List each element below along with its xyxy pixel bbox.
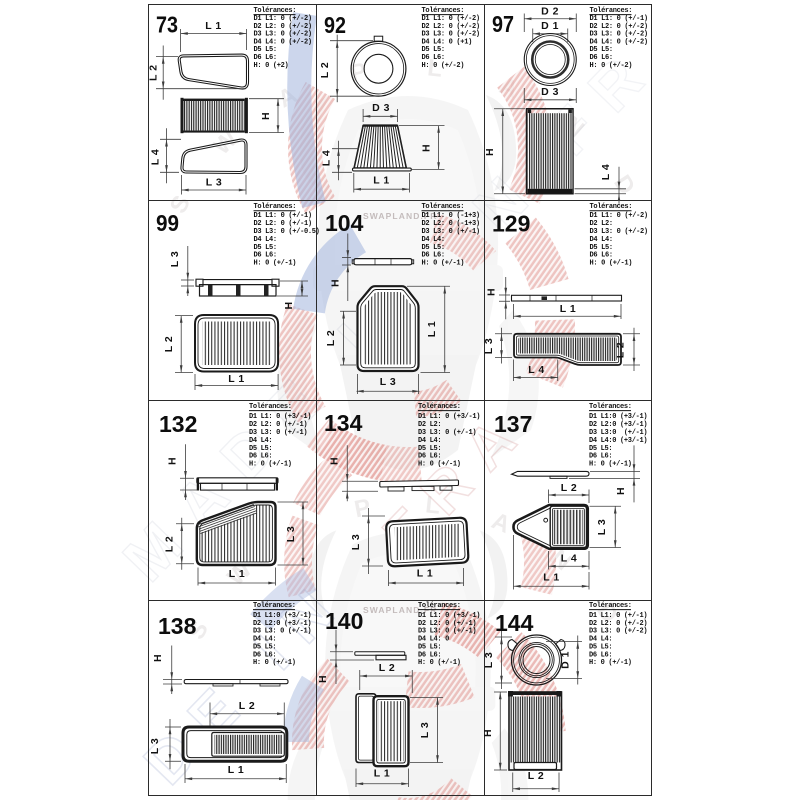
- svg-text:L 4: L 4: [150, 149, 162, 165]
- svg-text:L 2: L 2: [319, 62, 331, 78]
- svg-text:D4 L4:: D4 L4:: [249, 437, 272, 445]
- svg-text:134: 134: [324, 410, 363, 436]
- svg-text:H: H: [482, 729, 494, 737]
- svg-text:L 3: L 3: [483, 338, 495, 354]
- svg-text:H: H: [329, 457, 341, 465]
- svg-text:D2 L2: 0 (+/-1): D2 L2: 0 (+/-1): [418, 620, 476, 628]
- svg-text:D5 L5:: D5 L5:: [422, 46, 445, 54]
- svg-text:D2 L2: 0 (+/-1): D2 L2: 0 (+/-1): [254, 220, 312, 228]
- svg-text:L 2: L 2: [379, 662, 395, 674]
- svg-text:104: 104: [325, 210, 364, 236]
- svg-text:99: 99: [156, 210, 179, 236]
- svg-text:D5 L5:: D5 L5:: [249, 445, 272, 453]
- svg-text:D2 L2: 0 (+/-2): D2 L2: 0 (+/-2): [422, 23, 480, 31]
- svg-text:D3 L3: 0 (+/-2): D3 L3: 0 (+/-2): [589, 628, 647, 636]
- svg-text:D5 L5:: D5 L5:: [253, 643, 276, 651]
- svg-text:L 1: L 1: [426, 321, 438, 337]
- svg-text:D3 L3: 0 (+/-1): D3 L3: 0 (+/-1): [418, 628, 476, 636]
- svg-text:L 2: L 2: [615, 342, 627, 358]
- svg-text:H: 0 (+/-1): H: 0 (+/-1): [590, 260, 633, 268]
- svg-text:L 4: L 4: [321, 150, 333, 166]
- svg-text:D1 L1: 0 (-1+3): D1 L1: 0 (-1+3): [422, 212, 480, 220]
- svg-text:D5 L5:: D5 L5:: [422, 244, 445, 252]
- svg-text:Tolérances:: Tolérances:: [422, 7, 465, 15]
- svg-text:D5 L5:: D5 L5:: [590, 244, 613, 252]
- svg-text:D6 L6:: D6 L6:: [422, 54, 445, 62]
- svg-text:D4 L4:: D4 L4:: [418, 437, 441, 445]
- svg-text:D2 L2:: D2 L2:: [418, 421, 441, 429]
- svg-text:D4 L4:: D4 L4:: [590, 236, 613, 244]
- svg-text:D5 L5:: D5 L5:: [590, 46, 613, 54]
- svg-text:Tolérances:: Tolérances:: [589, 602, 632, 610]
- svg-text:129: 129: [492, 211, 530, 237]
- svg-text:D5 L5:: D5 L5:: [589, 445, 612, 453]
- svg-text:D 3: D 3: [372, 102, 390, 114]
- svg-text:D4 L4:0 (+3/-1): D4 L4:0 (+3/-1): [589, 437, 647, 445]
- svg-text:D3 L3: 0 (+/-1): D3 L3: 0 (+/-1): [422, 228, 480, 236]
- svg-text:H: 0 (+/-1): H: 0 (+/-1): [418, 461, 461, 469]
- svg-text:D4 L4: 0 (+1): D4 L4: 0 (+1): [422, 38, 473, 46]
- svg-text:H: 0 (+/-1): H: 0 (+/-1): [422, 260, 465, 268]
- svg-text:L 3: L 3: [350, 534, 362, 550]
- svg-text:H: 0 (+/-1): H: 0 (+/-1): [589, 659, 632, 667]
- svg-text:H: 0 (+2): H: 0 (+2): [254, 62, 289, 70]
- svg-text:D3 L3: 0 (+/-1): D3 L3: 0 (+/-1): [418, 429, 476, 437]
- svg-text:D6 L6:: D6 L6:: [254, 54, 277, 62]
- svg-text:Tolérances:: Tolérances:: [254, 203, 297, 211]
- svg-text:D2 L2:0 (+3/-1): D2 L2:0 (+3/-1): [589, 421, 647, 429]
- svg-text:L 3: L 3: [149, 738, 161, 754]
- svg-text:D6 L6:: D6 L6:: [589, 453, 612, 461]
- svg-text:L 3: L 3: [169, 251, 181, 267]
- svg-text:Tolérances:: Tolérances:: [249, 403, 292, 411]
- svg-text:L 1: L 1: [228, 373, 244, 385]
- svg-text:D1 L1: 0 (+3/-1): D1 L1: 0 (+3/-1): [418, 413, 480, 421]
- svg-text:140: 140: [325, 608, 363, 634]
- svg-text:D2 L2:0 (+3/-1): D2 L2:0 (+3/-1): [253, 620, 311, 628]
- svg-text:D1 L1: 0 (+/-2): D1 L1: 0 (+/-2): [422, 15, 480, 23]
- svg-text:D6 L6:: D6 L6:: [253, 651, 276, 659]
- svg-text:Tolérances:: Tolérances:: [418, 602, 461, 610]
- svg-text:D6 L6:: D6 L6:: [589, 651, 612, 659]
- svg-text:L 1: L 1: [205, 20, 221, 32]
- svg-text:97: 97: [492, 11, 514, 37]
- svg-text:D5 L5:: D5 L5:: [418, 445, 441, 453]
- svg-text:L 2: L 2: [148, 64, 160, 80]
- svg-text:D 2: D 2: [541, 6, 559, 18]
- svg-text:Tolérances:: Tolérances:: [253, 602, 296, 610]
- svg-text:D2 L2: 0 (+/-2): D2 L2: 0 (+/-2): [254, 23, 312, 31]
- svg-text:D4 L4: 0 (+/-2): D4 L4: 0 (+/-2): [254, 38, 312, 46]
- svg-text:L 1: L 1: [560, 303, 576, 315]
- svg-text:D4 L4:: D4 L4:: [422, 236, 445, 244]
- svg-text:L 4: L 4: [528, 364, 544, 376]
- svg-text:D 3: D 3: [541, 86, 559, 98]
- svg-text:D1 L1: 0 (+/-1): D1 L1: 0 (+/-1): [254, 212, 312, 220]
- svg-text:138: 138: [158, 613, 197, 639]
- svg-text:L 1: L 1: [373, 175, 389, 187]
- svg-text:D1 L1:0 (+3/-1): D1 L1:0 (+3/-1): [589, 413, 647, 421]
- svg-text:D1 L1: 0 (+/-1): D1 L1: 0 (+/-1): [589, 612, 647, 620]
- svg-text:L 1: L 1: [417, 568, 433, 580]
- svg-text:D3 L3: 0 (+/-2): D3 L3: 0 (+/-2): [590, 228, 648, 236]
- svg-text:D1 L1: 0 (+/-1): D1 L1: 0 (+/-1): [590, 15, 648, 23]
- svg-text:H: H: [615, 487, 627, 495]
- svg-text:H: 0 (+/-1): H: 0 (+/-1): [249, 461, 292, 469]
- svg-text:L 3: L 3: [483, 652, 495, 668]
- svg-text:D5 L5:: D5 L5:: [254, 46, 277, 54]
- svg-text:L 4: L 4: [561, 553, 577, 565]
- svg-text:D1 L1:0 (+3/-1): D1 L1:0 (+3/-1): [253, 612, 311, 620]
- svg-text:H: H: [152, 654, 164, 662]
- svg-text:D5 L5:: D5 L5:: [589, 643, 612, 651]
- svg-text:73: 73: [156, 12, 178, 38]
- svg-text:D2 L2: 0 (-1+3): D2 L2: 0 (-1+3): [422, 220, 480, 228]
- svg-text:H: H: [260, 112, 272, 120]
- svg-text:Tolérances:: Tolérances:: [590, 7, 633, 15]
- svg-text:D6 L6:: D6 L6:: [418, 651, 441, 659]
- svg-text:L 2: L 2: [528, 770, 544, 782]
- svg-text:Tolérances:: Tolérances:: [589, 403, 632, 411]
- svg-text:D4 L4:: D4 L4:: [253, 636, 276, 644]
- svg-text:D 1: D 1: [541, 20, 559, 32]
- svg-text:Tolérances:: Tolérances:: [254, 7, 297, 15]
- svg-text:L 3: L 3: [596, 519, 608, 535]
- svg-text:137: 137: [494, 411, 532, 437]
- svg-text:L 1: L 1: [229, 568, 245, 580]
- svg-text:H: 0 (+/-2): H: 0 (+/-2): [422, 62, 465, 70]
- svg-text:L 3: L 3: [285, 526, 297, 542]
- svg-text:Tolérances:: Tolérances:: [422, 203, 465, 211]
- svg-text:L 2: L 2: [239, 700, 255, 712]
- svg-text:D3 L3: 0 (+/-1): D3 L3: 0 (+/-1): [253, 628, 311, 636]
- svg-text:92: 92: [324, 12, 346, 38]
- svg-text:L 4: L 4: [600, 164, 612, 180]
- svg-text:L 2: L 2: [163, 336, 175, 352]
- svg-text:D6 L6:: D6 L6:: [249, 453, 272, 461]
- svg-text:L 1: L 1: [228, 764, 244, 776]
- svg-text:D1 L1: 0 (+/-2): D1 L1: 0 (+/-2): [254, 15, 312, 23]
- svg-text:D6 L6:: D6 L6:: [422, 252, 445, 260]
- svg-text:D6 L6:: D6 L6:: [254, 252, 277, 260]
- svg-text:H: 0 (+/-1): H: 0 (+/-1): [418, 659, 461, 667]
- svg-text:D6 L6:: D6 L6:: [590, 54, 613, 62]
- svg-text:D4 L4: 0: D4 L4: 0: [418, 636, 449, 644]
- svg-text:D6 L6:: D6 L6:: [418, 453, 441, 461]
- svg-text:D2 L2: 0 (+/-2): D2 L2: 0 (+/-2): [590, 23, 648, 31]
- svg-text:D4 L4: 0 (+/-2): D4 L4: 0 (+/-2): [590, 38, 648, 46]
- svg-text:D3 L3:0 (+/-1): D3 L3:0 (+/-1): [589, 429, 647, 437]
- svg-text:D3 L3: 0 (+/-0.5): D3 L3: 0 (+/-0.5): [254, 228, 320, 236]
- svg-text:D6 L6:: D6 L6:: [590, 252, 613, 260]
- svg-text:Tolérances:: Tolérances:: [418, 403, 461, 411]
- svg-text:H: H: [330, 279, 342, 287]
- svg-text:D4 L4:: D4 L4:: [589, 636, 612, 644]
- svg-text:L 3: L 3: [419, 722, 431, 738]
- svg-text:H: H: [283, 301, 295, 309]
- svg-text:D2 L2: 0 (+/-2): D2 L2: 0 (+/-2): [589, 620, 647, 628]
- svg-text:H: 0 (+/-1): H: 0 (+/-1): [254, 260, 297, 268]
- svg-text:H: H: [486, 288, 498, 296]
- svg-text:D3 L3: 0 (+/-1): D3 L3: 0 (+/-1): [249, 429, 307, 437]
- svg-text:Tolérances:: Tolérances:: [590, 203, 633, 211]
- svg-text:132: 132: [159, 411, 197, 437]
- svg-text:D 1: D 1: [560, 651, 572, 669]
- svg-text:H: 0 (+/-1): H: 0 (+/-1): [589, 461, 632, 469]
- svg-text:D1 L1: 0 (+/-2): D1 L1: 0 (+/-2): [590, 212, 648, 220]
- svg-text:D1 L1: 0 (+3/-1): D1 L1: 0 (+3/-1): [249, 413, 311, 421]
- svg-text:H: H: [167, 457, 179, 465]
- svg-text:H: 0 (+/-1): H: 0 (+/-1): [253, 659, 296, 667]
- svg-text:L 1: L 1: [543, 572, 559, 584]
- svg-text:D2 L2: 0 (+/-1): D2 L2: 0 (+/-1): [249, 421, 307, 429]
- svg-text:D1 L1: 0 (+3/-1): D1 L1: 0 (+3/-1): [418, 612, 480, 620]
- svg-text:L 3: L 3: [380, 376, 396, 388]
- svg-text:L 1: L 1: [374, 768, 390, 780]
- svg-text:D5 L5:: D5 L5:: [254, 244, 277, 252]
- svg-text:L 2: L 2: [561, 482, 577, 494]
- svg-text:H: 0 (+/-2): H: 0 (+/-2): [590, 62, 633, 70]
- svg-text:D2 L2:: D2 L2:: [590, 220, 613, 228]
- svg-text:H: H: [421, 144, 433, 152]
- svg-text:L 2: L 2: [164, 536, 176, 552]
- svg-text:D5 L5:: D5 L5:: [418, 643, 441, 651]
- svg-text:144: 144: [495, 610, 534, 636]
- svg-text:D4 L4:: D4 L4:: [254, 236, 277, 244]
- svg-text:H: H: [317, 675, 329, 683]
- svg-text:L 2: L 2: [325, 330, 337, 346]
- svg-text:L 3: L 3: [206, 177, 222, 189]
- svg-text:H: H: [484, 148, 496, 156]
